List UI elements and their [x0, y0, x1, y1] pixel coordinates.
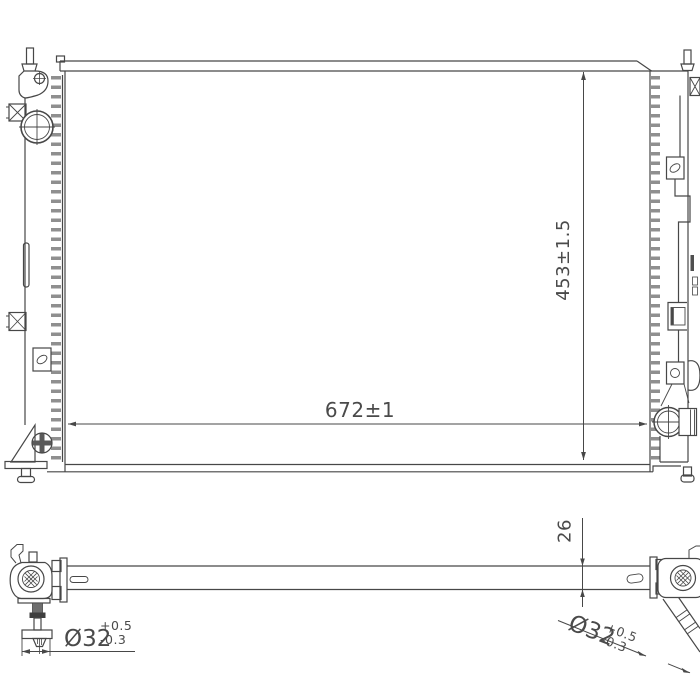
outlet-fitting: [658, 546, 700, 652]
end-cap-left: [52, 558, 67, 602]
crossmember-bar: [52, 557, 664, 602]
mount-pin-bottom-right: [681, 467, 694, 482]
height-dimension-label: 453±1.5: [553, 219, 574, 301]
front-view: 672±1 453±1.5: [5, 48, 700, 483]
diagonal-outlet-pipe: [663, 598, 700, 653]
drawing-canvas: 672±1 453±1.5: [0, 0, 700, 700]
radiator-technical-drawing: 672±1 453±1.5: [0, 0, 700, 700]
dimension-inlet-diameter: Ø32 +0.5 -0.3: [22, 618, 135, 656]
bracket-mid-right: [668, 303, 687, 331]
mount-pin-top-right: [684, 50, 691, 64]
mount-pin-bottom-left: [18, 469, 35, 483]
inlet-fitting: [10, 545, 52, 655]
clip-detail: [693, 277, 698, 295]
port-boss: [688, 361, 700, 391]
drain-plug: [22, 603, 52, 654]
width-dimension-label: 672±1: [325, 398, 395, 422]
left-tank: [5, 48, 55, 483]
bracket-lower-left: [6, 313, 26, 331]
dimension-height: 453±1.5: [553, 72, 586, 460]
inlet-diameter-lower-tol: -0.3: [100, 632, 126, 647]
clip-tab: [691, 255, 695, 271]
mount-pad-left: [33, 348, 51, 371]
drain-cock: [32, 433, 52, 453]
bar-slot-left: [70, 577, 88, 583]
dimension-width: 672±1: [68, 398, 647, 426]
inlet-diameter-upper-tol: +0.5: [100, 618, 132, 633]
bracket-top-right: [690, 78, 700, 96]
bolt-head-icon: [33, 72, 46, 85]
tank-rib: [24, 243, 30, 287]
bottom-view: 26 Ø32 +0.5 -0.3 Ø32 +0.5 -0.3: [10, 518, 700, 673]
mount-pin-top-left: [27, 48, 34, 64]
bar-slot-right: [627, 573, 644, 583]
mount-pad-right-upper: [667, 157, 685, 179]
mount-pad-right-lower: [667, 362, 685, 384]
dimension-outlet-diameter: Ø32 +0.5 -0.3: [558, 607, 690, 673]
dimension-thickness: 26: [555, 518, 585, 607]
thickness-dimension-label: 26: [555, 519, 576, 543]
gusset-triangle: [11, 425, 35, 462]
